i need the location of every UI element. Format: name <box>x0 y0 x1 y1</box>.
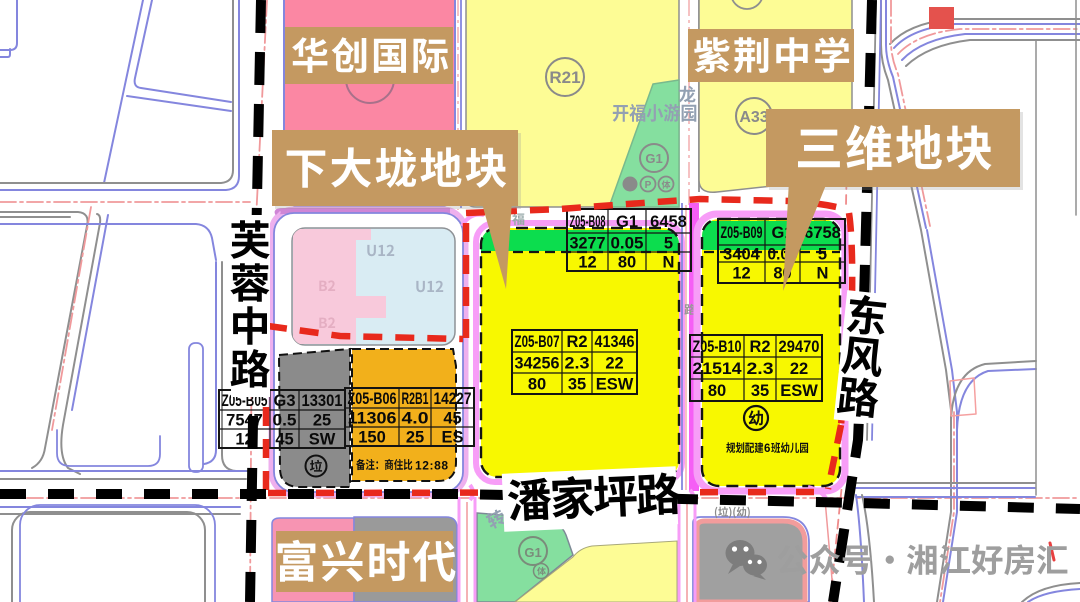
svg-text:25: 25 <box>313 411 331 429</box>
svg-text:5: 5 <box>664 234 673 252</box>
svg-text:Z05-B08: Z05-B08 <box>570 213 606 231</box>
svg-text:6758: 6758 <box>804 224 841 242</box>
svg-text:Z05-B10: Z05-B10 <box>693 338 742 356</box>
svg-text:150: 150 <box>358 428 386 446</box>
svg-text:Z05-B09: Z05-B09 <box>721 224 763 242</box>
svg-text:45: 45 <box>443 409 461 427</box>
svg-text:3277: 3277 <box>570 234 606 252</box>
svg-text:80: 80 <box>708 382 726 400</box>
svg-text:22: 22 <box>790 360 808 378</box>
svg-text:25: 25 <box>406 428 424 446</box>
svg-text:R2: R2 <box>566 333 587 351</box>
svg-text:R2B1: R2B1 <box>402 390 429 408</box>
svg-text:Z05-B06: Z05-B06 <box>348 390 397 408</box>
svg-text:ES: ES <box>441 428 463 446</box>
svg-text:N: N <box>817 264 829 282</box>
svg-text:G1: G1 <box>524 545 541 560</box>
svg-text:A33: A33 <box>739 109 768 126</box>
svg-text:14227: 14227 <box>434 390 472 408</box>
svg-text:G1: G1 <box>645 151 662 166</box>
svg-text:0.5: 0.5 <box>273 411 297 429</box>
svg-text:12: 12 <box>578 253 596 271</box>
svg-text:P: P <box>645 180 652 191</box>
svg-text:45: 45 <box>275 430 293 448</box>
svg-text:N: N <box>663 253 675 271</box>
svg-text:R21: R21 <box>549 68 580 87</box>
svg-text:2.3: 2.3 <box>565 354 590 372</box>
svg-text:R2: R2 <box>749 338 770 356</box>
svg-text:12: 12 <box>732 264 750 282</box>
svg-text:4.0: 4.0 <box>402 409 429 427</box>
svg-text:41346: 41346 <box>595 333 635 351</box>
svg-text:35: 35 <box>751 382 769 400</box>
svg-text:ESW: ESW <box>596 375 634 393</box>
svg-text:22: 22 <box>605 354 623 372</box>
svg-text:5: 5 <box>818 245 827 263</box>
svg-text:80: 80 <box>528 375 546 393</box>
svg-text:21514: 21514 <box>693 360 743 378</box>
svg-text:3404: 3404 <box>723 245 761 263</box>
svg-text:0.05: 0.05 <box>611 234 644 252</box>
svg-text:6458: 6458 <box>650 213 687 231</box>
svg-text:2.3: 2.3 <box>747 360 774 378</box>
svg-text:13301: 13301 <box>302 392 343 410</box>
svg-text:Z05-B07: Z05-B07 <box>515 333 560 351</box>
svg-text:12:88: 12:88 <box>415 459 448 473</box>
svg-text:29470: 29470 <box>779 338 820 356</box>
svg-text:80: 80 <box>618 253 636 271</box>
svg-text:6: 6 <box>764 443 770 455</box>
svg-text:11306: 11306 <box>348 409 397 427</box>
svg-text:34256: 34256 <box>515 354 560 372</box>
svg-text:ESW: ESW <box>780 382 818 400</box>
svg-text:G1: G1 <box>616 213 638 231</box>
svg-text:G3: G3 <box>273 392 295 410</box>
svg-text:SW: SW <box>309 430 336 448</box>
svg-text:35: 35 <box>568 375 586 393</box>
